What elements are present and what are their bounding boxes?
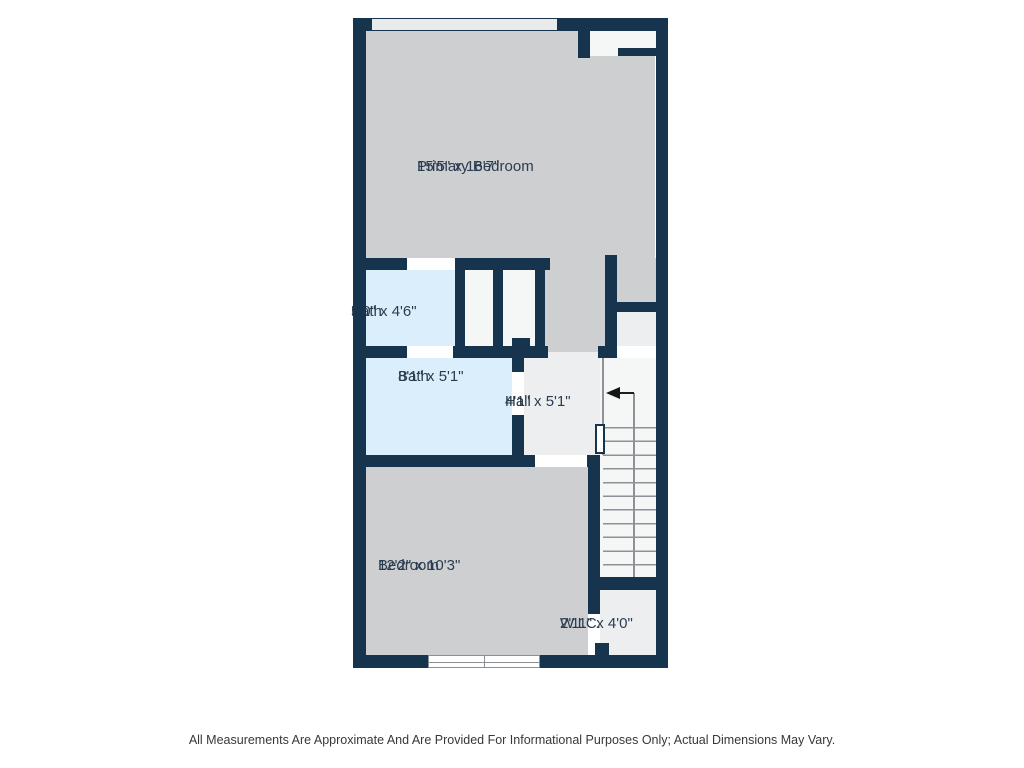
door-leaf [595,424,605,454]
wall [512,415,524,455]
window [428,655,540,668]
stair-center-line [633,393,635,577]
wall [617,302,656,312]
closet-top-right [590,31,656,48]
room-dimensions: 4'1" x 5'1" [505,391,571,412]
stair-treads [603,427,656,578]
room-floor-nook [617,258,656,302]
room-dimensions: 2'11" x 4'0" [560,613,633,634]
floor-plan: Primary Bedroom 15'5" x 16'7" Bath 5'0" … [0,0,1024,768]
room-dimensions: 8'1" x 5'1" [398,366,464,387]
wall [493,258,503,350]
room-dimensions: 15'5" x 16'7" [417,156,499,177]
closet-top-right-opening [590,48,618,56]
wall [578,31,590,58]
door-opening [407,258,455,270]
door-opening [617,346,656,358]
room-floor-primary-bedroom [366,30,655,258]
wall [656,18,668,668]
wall [535,258,545,350]
wall [512,338,530,346]
window-pane [429,656,485,667]
stair-arrow-line [620,392,634,394]
wall [588,577,668,590]
wall [353,455,535,467]
closet-cell-left [465,270,493,350]
wall [595,643,609,657]
wall [512,358,524,372]
wall [453,346,548,358]
room-floor-passage [545,258,605,358]
window-pane [485,656,540,667]
stair-direction-arrow-icon [606,387,620,399]
disclaimer-text: All Measurements Are Approximate And Are… [0,733,1024,747]
wall [353,346,407,358]
wall [605,255,617,358]
wall [455,258,465,350]
door-opening [407,346,453,358]
wall [598,346,617,358]
wall [588,455,600,590]
room-dimensions: 12'2" x 10'3" [378,555,460,576]
window [372,19,557,30]
wall [353,258,407,270]
wall [353,18,366,668]
wall [618,48,656,56]
wall [588,590,600,614]
door-opening [535,455,587,467]
